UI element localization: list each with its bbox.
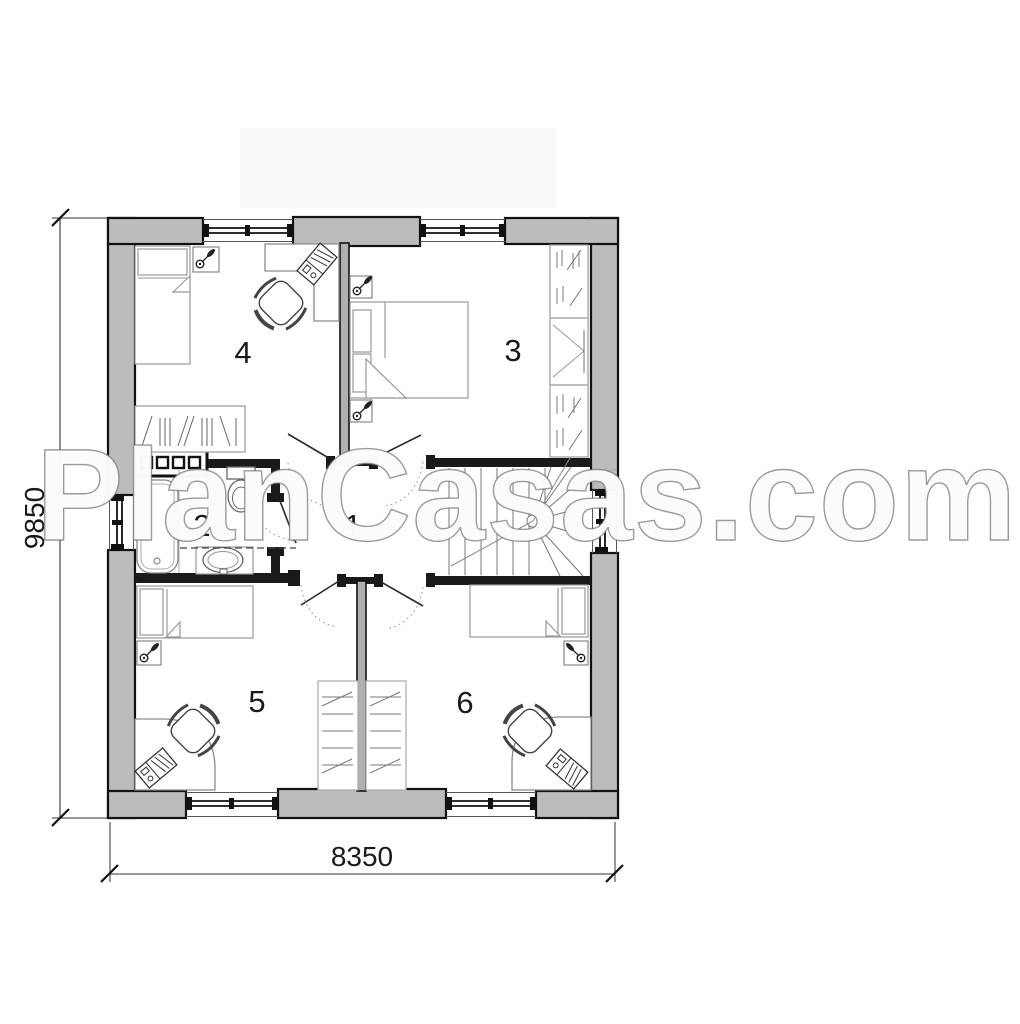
chair-room4 bbox=[245, 273, 310, 338]
bed-room6 bbox=[470, 585, 588, 637]
nightstand-room3-bottom bbox=[350, 400, 373, 422]
floor-plan-page: 1 2 3 4 5 6 9850 8350 PlanCasas.com bbox=[0, 0, 1020, 1024]
bathroom-sink bbox=[196, 547, 253, 574]
window-bottom-left bbox=[186, 793, 278, 817]
toilet bbox=[227, 467, 255, 512]
bathroom-radiator-shelf bbox=[135, 451, 207, 476]
room-label-bedroom5: 5 bbox=[248, 684, 265, 719]
dimension-bottom: 8350 bbox=[101, 822, 623, 882]
window-top-left bbox=[203, 220, 293, 242]
room-label-bedroom3: 3 bbox=[504, 333, 521, 368]
faint-artifact-block bbox=[240, 128, 557, 208]
nightstand-room4 bbox=[193, 247, 219, 272]
room-label-bedroom4: 4 bbox=[234, 335, 251, 370]
bed-room4 bbox=[135, 246, 190, 364]
room-label-hall: 1 bbox=[344, 508, 361, 543]
window-left-bathroom bbox=[110, 495, 134, 550]
bed-room5 bbox=[137, 586, 253, 638]
dimension-left-label: 9850 bbox=[19, 487, 50, 549]
lamp-table-room5 bbox=[137, 641, 161, 665]
dimension-left: 9850 bbox=[19, 209, 107, 826]
window-bottom-right bbox=[446, 793, 536, 817]
room-label-bathroom: 2 bbox=[193, 508, 210, 543]
nightstand-room3-top bbox=[350, 275, 373, 298]
room-label-bedroom6: 6 bbox=[456, 685, 473, 720]
wardrobe-room5 bbox=[318, 681, 358, 790]
wardrobe-room6 bbox=[366, 681, 406, 790]
wardrobe-room4 bbox=[135, 406, 245, 452]
bathtub bbox=[137, 470, 179, 573]
bed-room3 bbox=[350, 302, 468, 398]
dimension-bottom-label: 8350 bbox=[331, 841, 393, 872]
wardrobe-room3 bbox=[550, 245, 588, 457]
floor-plan-drawing: 1 2 3 4 5 6 9850 8350 bbox=[0, 0, 1020, 1024]
lamp-table-room6 bbox=[564, 641, 588, 665]
window-top-right bbox=[420, 220, 505, 242]
